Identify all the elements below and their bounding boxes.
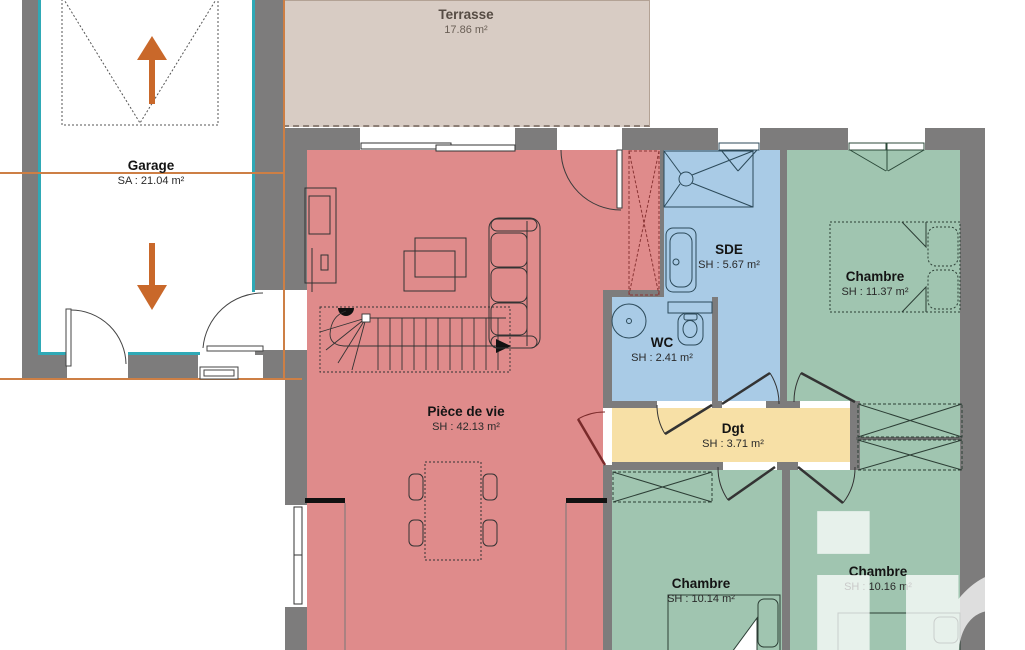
room-area: SH : 10.14 m² <box>601 593 801 606</box>
room-name: Terrasse <box>366 7 566 23</box>
room-name: Pièce de vie <box>366 404 566 420</box>
room-name: Chambre <box>778 564 978 580</box>
room-area: SH : 10.16 m² <box>778 581 978 594</box>
room-label-chambre3: Chambre SH : 10.16 m² <box>778 564 978 593</box>
room-label-sde: SDE SH : 5.67 m² <box>669 242 789 271</box>
staircase <box>320 307 511 372</box>
room-label-terrasse: Terrasse 17.86 m² <box>366 7 566 36</box>
parking-arrow-up <box>137 36 167 104</box>
bay-window-icon <box>361 143 515 151</box>
duct-shaft-hatch <box>629 151 659 295</box>
window-icon <box>849 143 924 171</box>
room-area: 17.86 m² <box>366 24 566 37</box>
room-label-chambre1: Chambre SH : 11.37 m² <box>775 269 975 298</box>
shower-tray <box>664 151 753 207</box>
parking-marking <box>62 0 218 125</box>
bed-double <box>830 222 960 312</box>
coffee-tables <box>404 238 466 291</box>
room-name: Dgt <box>633 421 833 437</box>
dining-table <box>409 462 497 560</box>
room-name: WC <box>602 335 722 351</box>
garage-door-swing <box>66 293 263 379</box>
room-label-dgt: Dgt SH : 3.71 m² <box>633 421 833 450</box>
room-area: SH : 5.67 m² <box>669 259 789 272</box>
washbasin <box>612 304 646 338</box>
kitchen-partition <box>305 498 607 650</box>
bed-single <box>838 613 960 650</box>
room-label-piece-de-vie: Pièce de vie SH : 42.13 m² <box>366 404 566 433</box>
room-name: Chambre <box>601 576 801 592</box>
floorplan-linework <box>0 0 1025 650</box>
bed-fold <box>902 222 926 312</box>
room-name: SDE <box>669 242 789 258</box>
room-label-wc: WC SH : 2.41 m² <box>602 335 722 364</box>
room-label-chambre2: Chambre SH : 10.14 m² <box>601 576 801 605</box>
room-name: Garage <box>51 158 251 174</box>
room-area: SH : 42.13 m² <box>366 421 566 434</box>
room-name: Chambre <box>775 269 975 285</box>
window-icon <box>294 507 302 604</box>
tv-unit <box>305 188 336 292</box>
parking-arrow-down <box>137 243 167 310</box>
room-label-garage: Garage SA : 21.04 m² <box>51 158 251 187</box>
closet-icon <box>858 404 962 470</box>
floorplan-canvas: Garage SA : 21.04 m² Terrasse 17.86 m² P… <box>0 0 1025 650</box>
sofa <box>489 218 540 348</box>
closet-icon <box>613 472 712 502</box>
room-area: SH : 11.37 m² <box>775 286 975 299</box>
room-area: SH : 3.71 m² <box>633 438 833 451</box>
entrance-door-swing <box>561 150 622 210</box>
room-area: SA : 21.04 m² <box>51 175 251 188</box>
room-area: SH : 2.41 m² <box>602 352 722 365</box>
